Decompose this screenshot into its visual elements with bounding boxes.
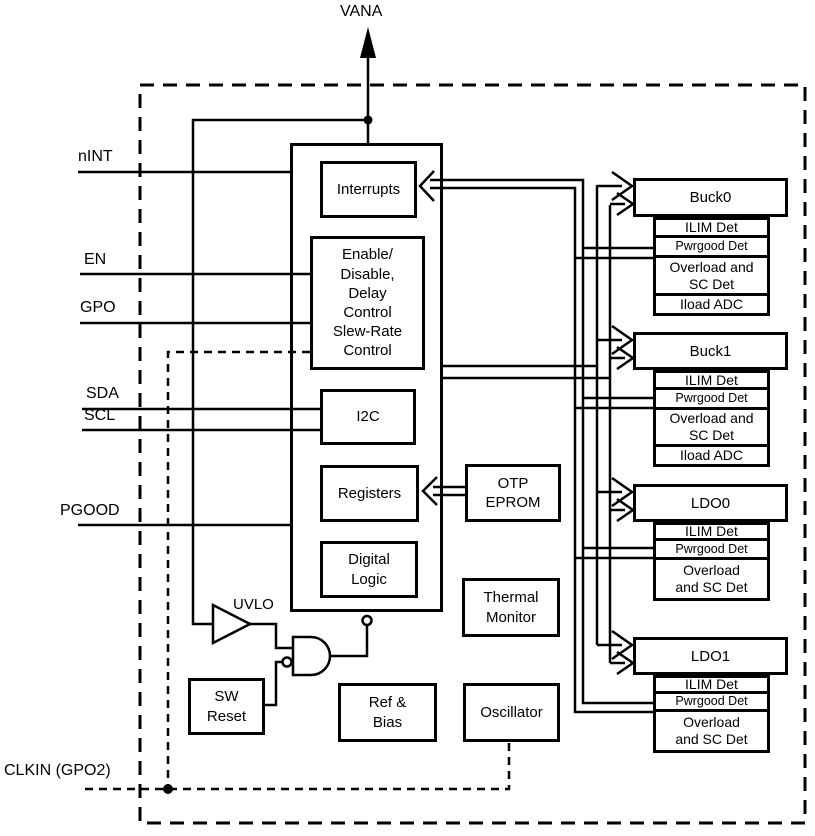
vana-arrowhead bbox=[360, 27, 376, 58]
ldo0-subblocks: ILIM Det Pwrgood Det Overload and SC Det bbox=[653, 522, 770, 601]
pin-label-sda: SDA bbox=[86, 385, 119, 403]
block-registers: Registers bbox=[320, 465, 419, 522]
pin-label-clkin: CLKIN (GPO2) bbox=[4, 762, 111, 780]
buck0-overload-det: Overload and SC Det bbox=[653, 255, 770, 296]
pin-label-scl: SCL bbox=[84, 407, 115, 425]
pin-label-nint: nINT bbox=[78, 148, 113, 166]
ldo1-subblocks: ILIM Det Pwrgood Det Overload and SC Det bbox=[653, 675, 770, 753]
ldo1-overload-det: Overload and SC Det bbox=[653, 709, 770, 753]
pin-label-gpo: GPO bbox=[80, 299, 116, 317]
clkin-junction-dot bbox=[163, 784, 173, 794]
block-ldo0: LDO0 bbox=[633, 484, 788, 522]
vana-junction-dot bbox=[364, 116, 373, 125]
ldo0-overload-det: Overload and SC Det bbox=[653, 557, 770, 601]
buck1-iload-adc: Iload ADC bbox=[653, 444, 770, 467]
block-ref-bias: Ref & Bias bbox=[338, 683, 437, 742]
pin-label-vana: VANA bbox=[340, 3, 382, 21]
block-enable-control: Enable/ Disable, Delay Control Slew-Rate… bbox=[310, 236, 425, 370]
block-buck0: Buck0 bbox=[633, 178, 788, 217]
block-sw-reset: SW Reset bbox=[188, 678, 265, 735]
block-i2c: I2C bbox=[320, 389, 416, 445]
buck1-subblocks: ILIM Det Pwrgood Det Overload and SC Det… bbox=[653, 370, 770, 467]
block-interrupts: Interrupts bbox=[320, 161, 417, 218]
block-oscillator: Oscillator bbox=[463, 683, 560, 742]
pin-label-pgood: PGOOD bbox=[60, 502, 120, 520]
block-thermal-monitor: Thermal Monitor bbox=[462, 578, 560, 637]
block-otp-eprom: OTP EPROM bbox=[465, 464, 561, 522]
block-ldo1: LDO1 bbox=[633, 637, 788, 675]
pin-lines bbox=[78, 172, 320, 525]
pin-label-en: EN bbox=[84, 251, 106, 269]
block-buck1: Buck1 bbox=[633, 332, 788, 370]
uvlo-label: UVLO bbox=[233, 596, 274, 613]
functional-block-diagram: VANA nINT EN GPO SDA SCL PGOOD CLKIN (GP… bbox=[0, 0, 815, 836]
buck0-iload-adc: Iload ADC bbox=[653, 293, 770, 316]
buck0-subblocks: ILIM Det Pwrgood Det Overload and SC Det… bbox=[653, 217, 770, 316]
buck1-overload-det: Overload and SC Det bbox=[653, 407, 770, 447]
block-digital-logic: Digital Logic bbox=[320, 541, 418, 598]
